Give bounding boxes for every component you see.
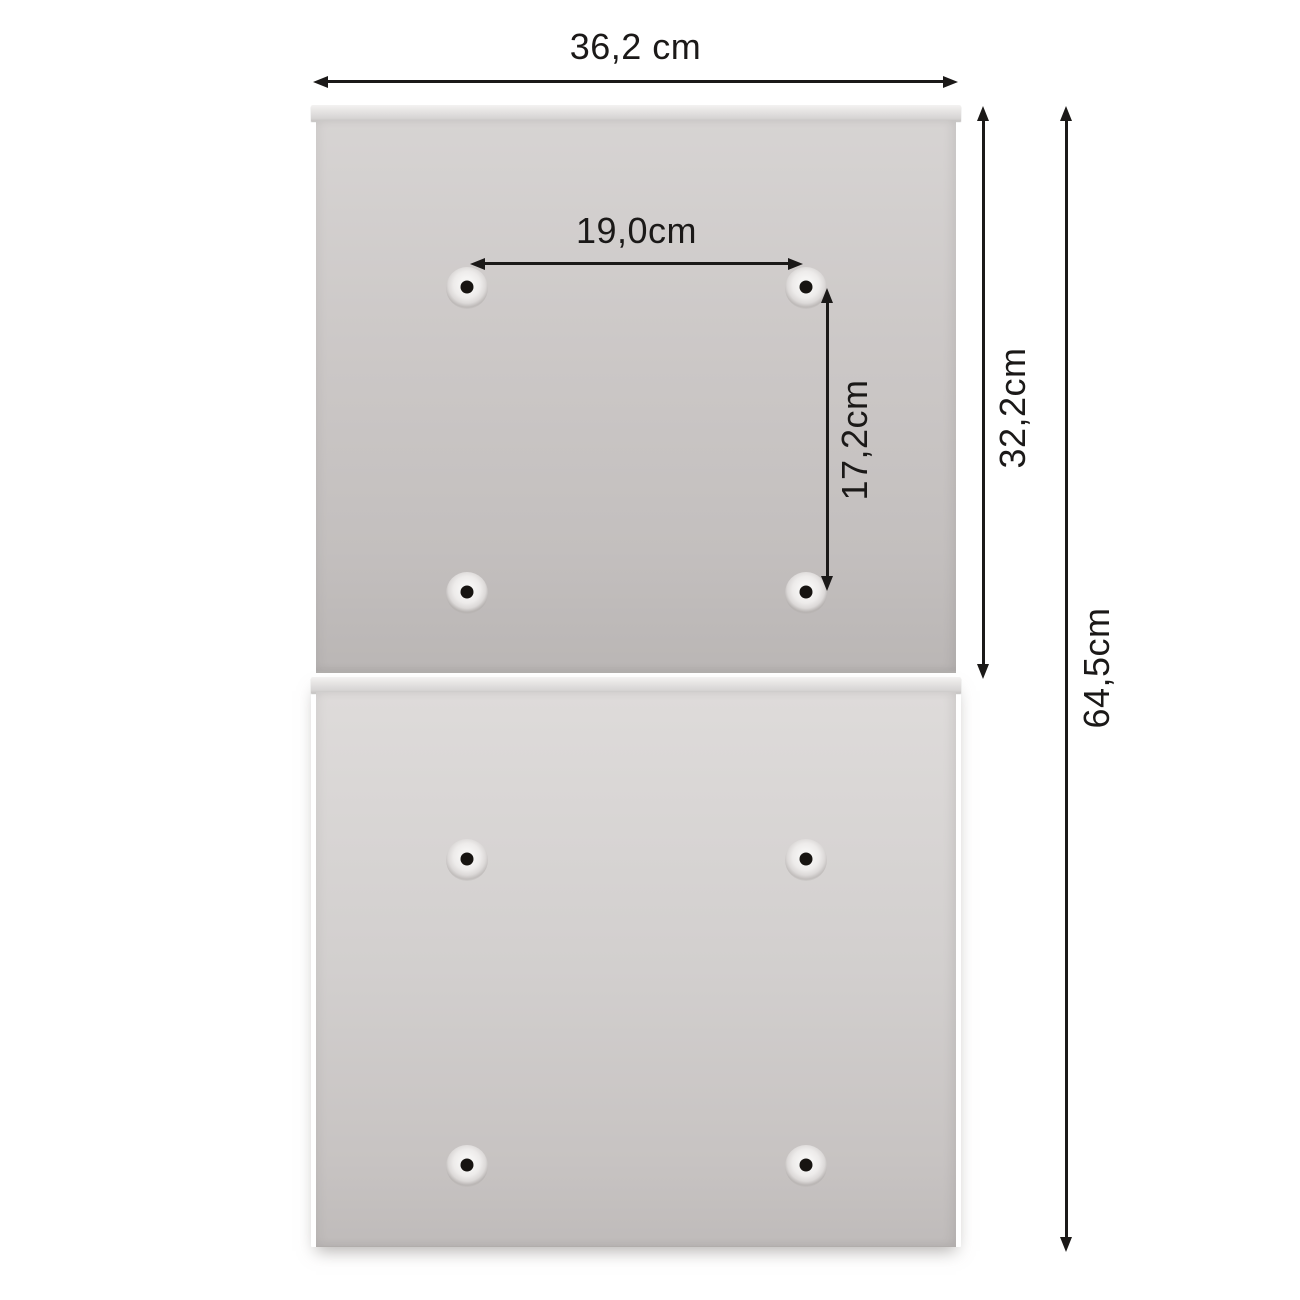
total-height-label: 64,5cm [1077,607,1117,728]
upper-panel-height-dimension: 32,2cm [982,106,985,679]
hole-dot [800,1158,813,1171]
dimension-line [325,80,946,83]
mounting-hole [446,1145,488,1187]
hole-dot [800,585,813,598]
arrowhead-right-icon [943,76,958,88]
mounting-hole [446,839,488,881]
mounting-hole [785,839,827,881]
lower-panel [311,677,961,1247]
hole-dot [800,852,813,865]
hole-spacing-horizontal-label: 19,0cm [576,211,697,251]
hole-dot [461,1158,474,1171]
dimension-line [982,118,985,667]
arrowhead-up-icon [821,288,833,303]
arrowhead-down-icon [1060,1237,1072,1252]
upper-panel-top-rail [311,105,961,121]
total-height-dimension: 64,5cm [1065,106,1068,1252]
dimension-line [482,262,791,265]
dimension-line [826,300,829,579]
arrowhead-up-icon [1060,106,1072,121]
dimension-line [1065,118,1068,1240]
arrowhead-down-icon [977,664,989,679]
arrowhead-left-icon [313,76,328,88]
overall-width-label: 36,2 cm [570,27,702,67]
arrowhead-right-icon [788,258,803,270]
product-dimension-diagram: 36,2 cm 19,0cm 17,2cm 32,2cm 64,5cm [0,0,1300,1300]
hole-dot [800,280,813,293]
hole-spacing-vertical-dimension: 17,2cm [826,288,829,591]
mounting-hole [785,1145,827,1187]
arrowhead-left-icon [470,258,485,270]
hole-dot [461,852,474,865]
mounting-hole [446,572,488,614]
hole-dot [461,585,474,598]
lower-panel-face [316,692,956,1247]
lower-panel-top-rail [311,677,961,693]
hole-spacing-vertical-label: 17,2cm [835,379,875,500]
arrowhead-down-icon [821,576,833,591]
overall-width-dimension: 36,2 cm [313,80,958,83]
arrowhead-up-icon [977,106,989,121]
hole-spacing-horizontal-dimension: 19,0cm [470,262,803,265]
upper-panel-height-label: 32,2cm [993,347,1033,468]
hole-dot [461,280,474,293]
mounting-hole [446,267,488,309]
